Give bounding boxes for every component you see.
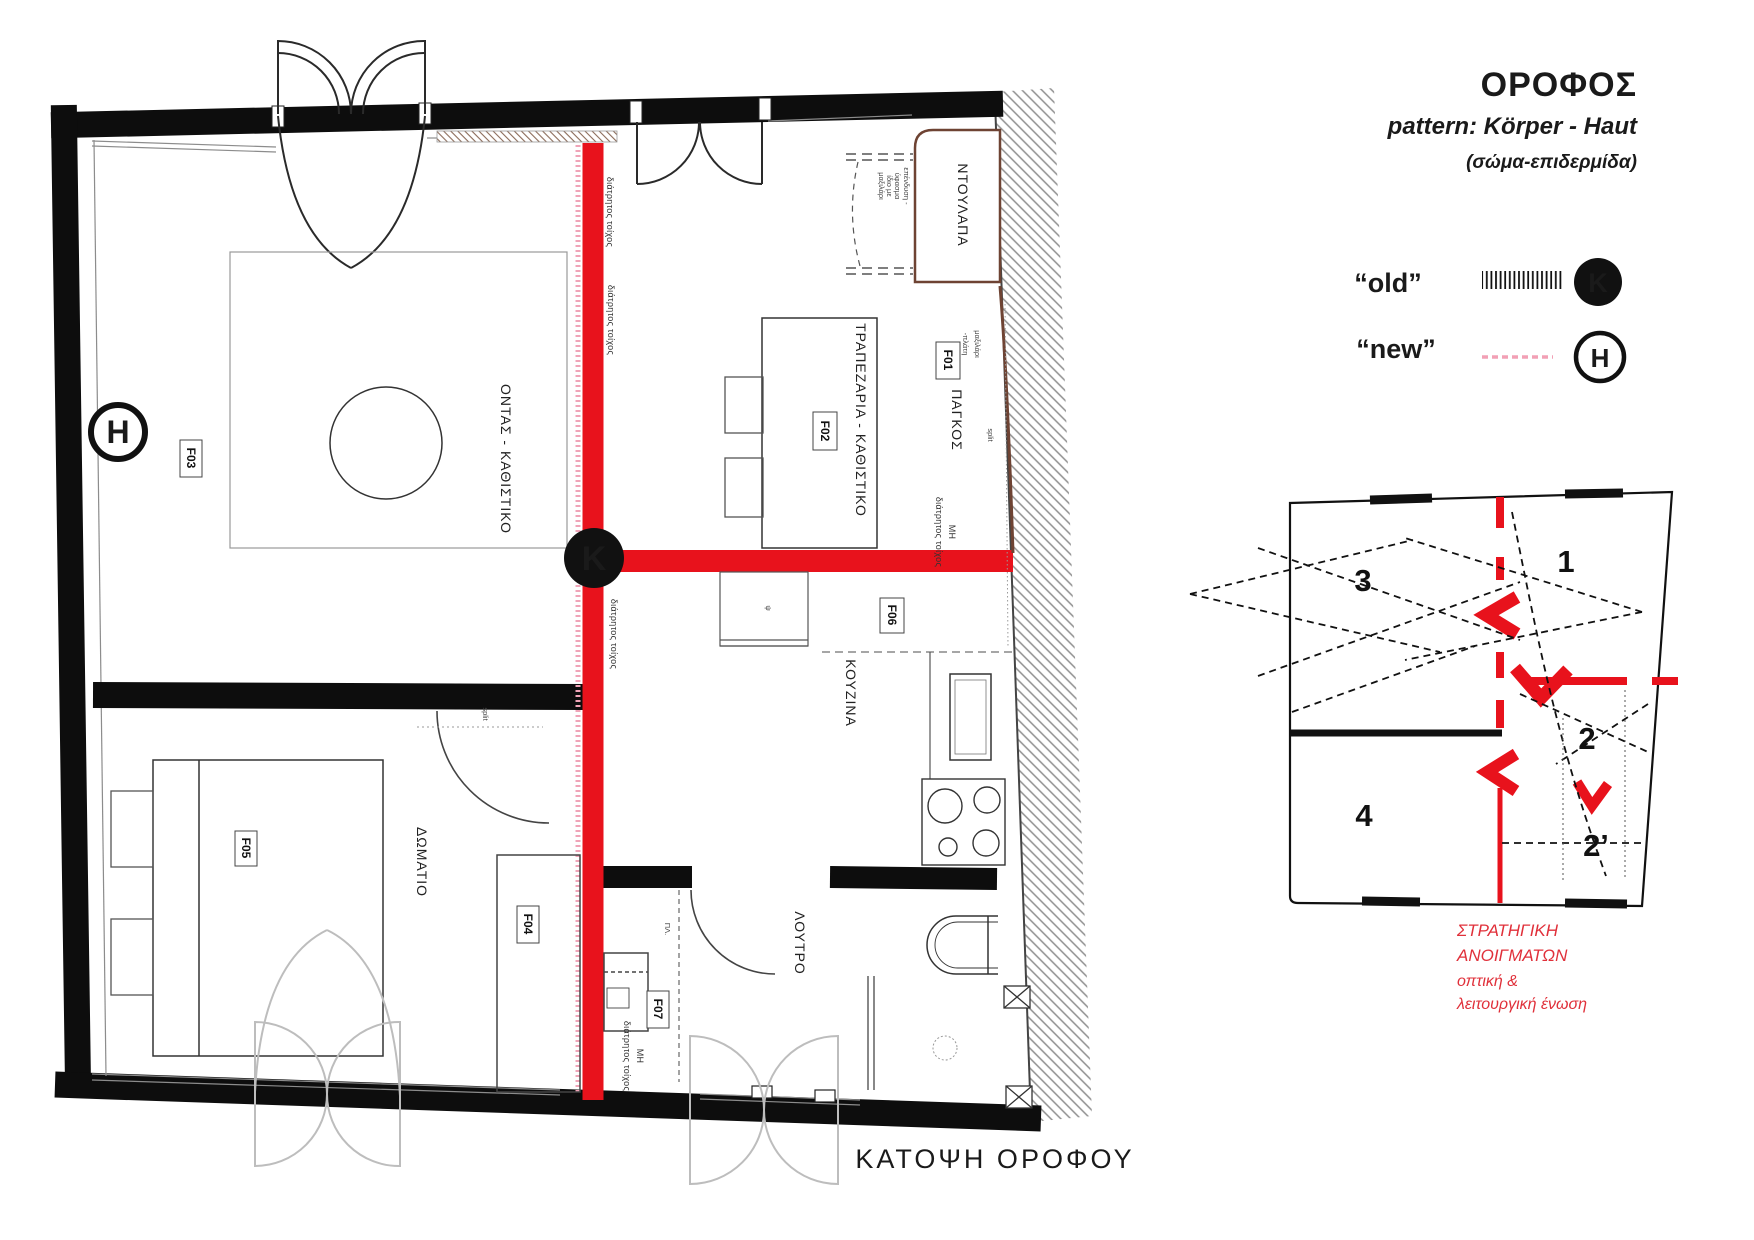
label-f02: F02 <box>818 421 832 442</box>
strategy-note-line3: οπτική & <box>1457 973 1518 990</box>
sheet-subtitle: (σώμα-επιδερμίδα) <box>1466 152 1637 173</box>
strategy-note: ΣΤΡΑΤΗΓΙΚΗ ΑΝΟΙΓΜΑΤΩΝ οπτική & λειτουργι… <box>1456 921 1587 1013</box>
zone-2: 2 <box>1578 721 1595 756</box>
chair <box>725 377 763 433</box>
room-dining: ΤΡΑΠΕΖΑΡΙΑ - ΚΑΘΙΣΤΙΚΟ <box>853 323 869 517</box>
label-f04: F04 <box>521 914 535 935</box>
party-wall-hatch <box>995 88 1092 1122</box>
nightstand <box>111 791 153 867</box>
room-closet: ΝΤΟΥΛΑΠΑ <box>955 163 971 246</box>
note-upholstery-1: επένδυση - <box>902 167 911 205</box>
living-double-door <box>637 122 762 184</box>
note-upholstery-4: μαξιλάρι <box>877 172 886 200</box>
drawing-sheet: H K F03 F02 F01 F06 F05 F04 F07 ΟΝΤΑΣ - … <box>0 0 1754 1240</box>
shower-partition <box>868 976 874 1090</box>
note-psi: ψ <box>764 605 773 610</box>
entrance-butterfly-door <box>278 41 425 268</box>
strategy-note-line4: λειτουργική ένωση <box>1456 996 1587 1013</box>
legend: “old” K “new” H <box>1354 258 1624 381</box>
plan-caption: ΚΑΤΟΨΗ ΟΡΟΦΟΥ <box>855 1144 1134 1174</box>
floor-plan-svg: H K F03 F02 F01 F06 F05 F04 F07 ΟΝΤΑΣ - … <box>0 0 1754 1240</box>
strategy-note-line2: ΑΝΟΙΓΜΑΤΩΝ <box>1456 946 1568 965</box>
label-f06: F06 <box>885 605 899 626</box>
nightstand <box>111 919 153 995</box>
note-perforated-1: διάτρητος τοίχος <box>605 177 615 248</box>
diagram-outline <box>1290 492 1672 906</box>
gray-butterfly-door-left <box>255 930 400 1166</box>
room-bench: ΠΑΓΚΟΣ <box>949 389 965 451</box>
note-perforated-5: διάτρητος τοίχος <box>622 1021 632 1092</box>
floor-plan: H K F03 F02 F01 F06 F05 F04 F07 ΟΝΤΑΣ - … <box>64 41 1135 1184</box>
living-carpet <box>230 252 567 548</box>
legend-new-symbol: H <box>1591 343 1610 373</box>
room-bedroom: ΔΩΜΑΤΙΟ <box>414 827 430 897</box>
shower-drain <box>933 1036 957 1060</box>
legend-old-hatch <box>1482 271 1562 289</box>
label-f01: F01 <box>941 350 955 371</box>
bedroom-wardrobe <box>497 855 580 1092</box>
note-mh-1: ΜΗ <box>947 525 957 540</box>
zone-4: 4 <box>1355 798 1373 833</box>
note-perforated-4: διάτρητος τοίχος <box>934 497 944 568</box>
bathroom-door-arc <box>691 890 775 974</box>
toilet <box>927 916 998 974</box>
note-perforated-3: διάτρητος τοίχος <box>609 599 619 670</box>
marker-k: K <box>564 528 624 588</box>
legend-old-label: “old” <box>1354 268 1422 298</box>
note-washer: ΠΛ. <box>663 923 672 936</box>
marker-k-label: K <box>582 540 607 578</box>
washing-machine <box>604 953 648 1031</box>
wall-top <box>64 104 990 125</box>
zone-3: 3 <box>1354 563 1371 598</box>
room-living: ΟΝΤΑΣ - ΚΑΘΙΣΤΙΚΟ <box>498 384 514 534</box>
label-f03: F03 <box>184 448 198 469</box>
legend-old-symbol: K <box>1588 268 1608 298</box>
strategy-note-line1: ΣΤΡΑΤΗΓΙΚΗ <box>1456 921 1559 940</box>
stove <box>922 779 1005 865</box>
strategy-diagram: 3 1 2 2’ 4 ΣΤΡΑΤΗΓΙΚΗ ΑΝΟΙΓΜΑΤΩΝ οπτική … <box>1190 492 1678 1013</box>
bedroom-door-arc <box>437 711 549 823</box>
legend-new-label: “new” <box>1356 334 1436 364</box>
label-f05: F05 <box>239 838 253 859</box>
sheet-pattern: pattern: Körper - Haut <box>1387 113 1638 140</box>
sink-basin <box>955 680 986 754</box>
note-split-2: split <box>481 707 490 721</box>
wall-bath-right <box>830 877 997 879</box>
wall-notes: διάτρητος τοίχος διάτρητος τοίχος διάτρη… <box>481 167 995 1091</box>
zone-1: 1 <box>1557 544 1574 579</box>
label-f07: F07 <box>651 999 665 1020</box>
marker-h-label: H <box>106 414 129 450</box>
note-cushion-2: -πλάτη <box>961 333 970 356</box>
kitchen-island <box>720 572 808 646</box>
wall-left <box>64 118 78 1084</box>
title-block: ΟΡΟΦΟΣ pattern: Körper - Haut (σώμα-επιδ… <box>1387 66 1638 173</box>
room-kitchen: ΚΟΥΖΙΝΑ <box>843 659 859 727</box>
note-cushion-1: μαξιλάρι <box>973 330 982 358</box>
sheet-title: ΟΡΟΦΟΣ <box>1481 66 1637 104</box>
sink <box>950 674 991 760</box>
marker-h: H <box>91 405 145 459</box>
round-table <box>330 387 442 499</box>
zone-2p: 2’ <box>1583 828 1609 863</box>
note-split-1: split <box>986 428 995 442</box>
wall-bedroom-divider <box>93 695 583 697</box>
room-bathroom: ΛΟΥΤΡΟ <box>792 911 808 975</box>
inner-face-lines <box>92 115 912 1105</box>
note-perforated-2: διάτρητος τοίχος <box>606 285 616 356</box>
note-mh-2: ΜΗ <box>635 1049 645 1064</box>
top-wall-hatch-strip <box>437 131 617 142</box>
interior-walls <box>93 695 997 879</box>
chair <box>725 458 763 517</box>
